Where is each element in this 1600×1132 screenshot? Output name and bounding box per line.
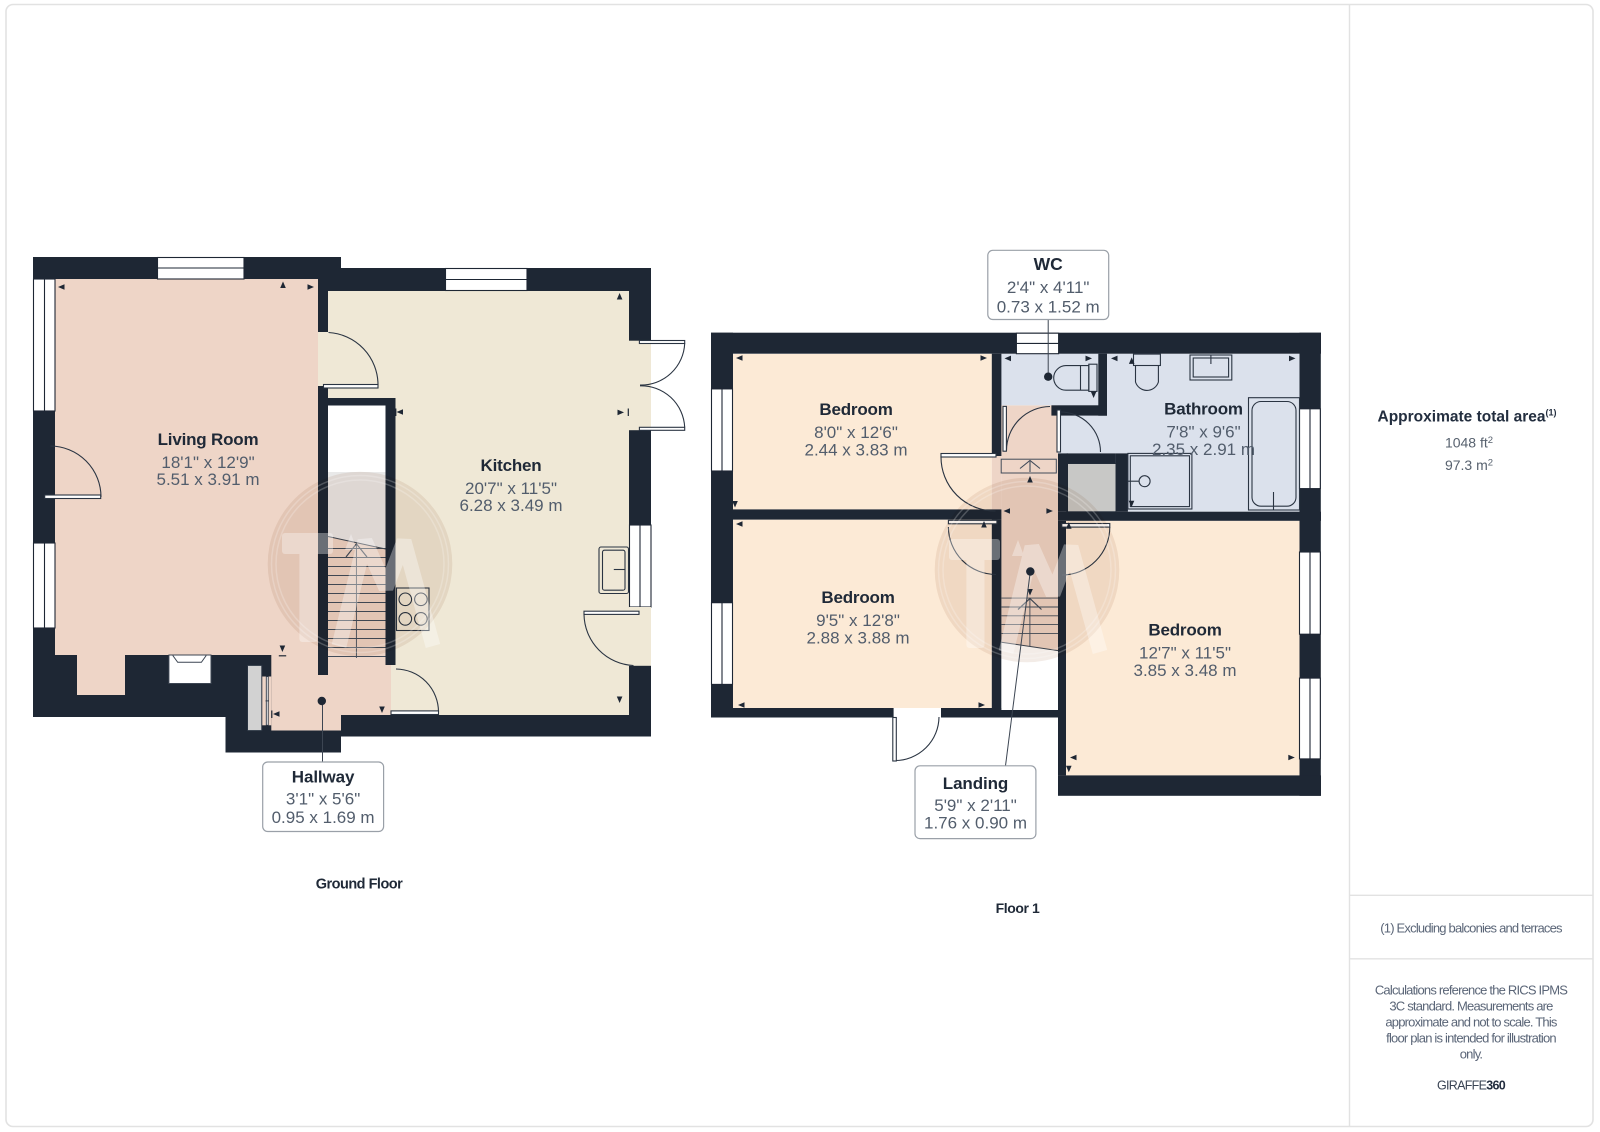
- svg-text:Hallway: Hallway: [292, 767, 355, 786]
- svg-text:5.51 x 3.91 m: 5.51 x 3.91 m: [156, 470, 259, 489]
- svg-text:2.44 x 3.83 m: 2.44 x 3.83 m: [804, 441, 907, 460]
- svg-text:3'1" x 5'6": 3'1" x 5'6": [286, 790, 360, 809]
- svg-text:2'4" x 4'11": 2'4" x 4'11": [1007, 278, 1090, 297]
- svg-text:Kitchen: Kitchen: [481, 456, 542, 475]
- svg-text:3.85 x 3.48 m: 3.85 x 3.48 m: [1133, 661, 1236, 680]
- svg-text:2.88 x 3.88 m: 2.88 x 3.88 m: [806, 629, 909, 648]
- svg-text:2.35 x 2.91 m: 2.35 x 2.91 m: [1152, 440, 1255, 459]
- svg-text:1048 ft2: 1048 ft2: [1445, 435, 1493, 451]
- svg-text:GIRAFFE360: GIRAFFE360: [1437, 1079, 1506, 1093]
- svg-text:8'0" x 12'6": 8'0" x 12'6": [814, 423, 898, 442]
- svg-text:12'7" x 11'5": 12'7" x 11'5": [1139, 644, 1231, 663]
- svg-text:Bedroom: Bedroom: [819, 400, 892, 419]
- svg-text:approximate and not to scale.: approximate and not to scale. This: [1385, 1015, 1558, 1030]
- svg-text:floor plan is intended for ill: floor plan is intended for illustration: [1386, 1031, 1556, 1046]
- svg-text:Ground Floor: Ground Floor: [316, 877, 403, 893]
- svg-text:Approximate total area(1): Approximate total area(1): [1378, 407, 1557, 425]
- svg-text:WC: WC: [1034, 254, 1064, 274]
- svg-text:0.95 x 1.69 m: 0.95 x 1.69 m: [272, 808, 375, 827]
- svg-text:Floor 1: Floor 1: [996, 900, 1040, 916]
- svg-text:Bathroom: Bathroom: [1164, 399, 1243, 418]
- svg-text:1.76 x 0.90 m: 1.76 x 0.90 m: [924, 814, 1027, 833]
- svg-text:Living Room: Living Room: [158, 430, 259, 449]
- svg-text:0.73 x 1.52 m: 0.73 x 1.52 m: [997, 298, 1100, 317]
- svg-text:Bedroom: Bedroom: [821, 588, 894, 607]
- svg-text:Bedroom: Bedroom: [1148, 621, 1221, 640]
- svg-text:5'9" x 2'11": 5'9" x 2'11": [934, 796, 1017, 815]
- svg-text:97.3 m2: 97.3 m2: [1445, 457, 1493, 473]
- svg-text:only.: only.: [1460, 1047, 1483, 1062]
- svg-text:7'8" x 9'6": 7'8" x 9'6": [1166, 422, 1240, 441]
- svg-text:Landing: Landing: [943, 774, 1008, 793]
- svg-text:Calculations reference the RIC: Calculations reference the RICS IPMS: [1375, 983, 1568, 998]
- svg-text:(1) Excluding balconies and te: (1) Excluding balconies and terraces: [1380, 921, 1563, 936]
- svg-text:3C standard. Measurements are: 3C standard. Measurements are: [1389, 999, 1553, 1014]
- svg-text:6.28 x 3.49 m: 6.28 x 3.49 m: [459, 496, 562, 515]
- svg-text:9'5" x 12'8": 9'5" x 12'8": [816, 611, 900, 630]
